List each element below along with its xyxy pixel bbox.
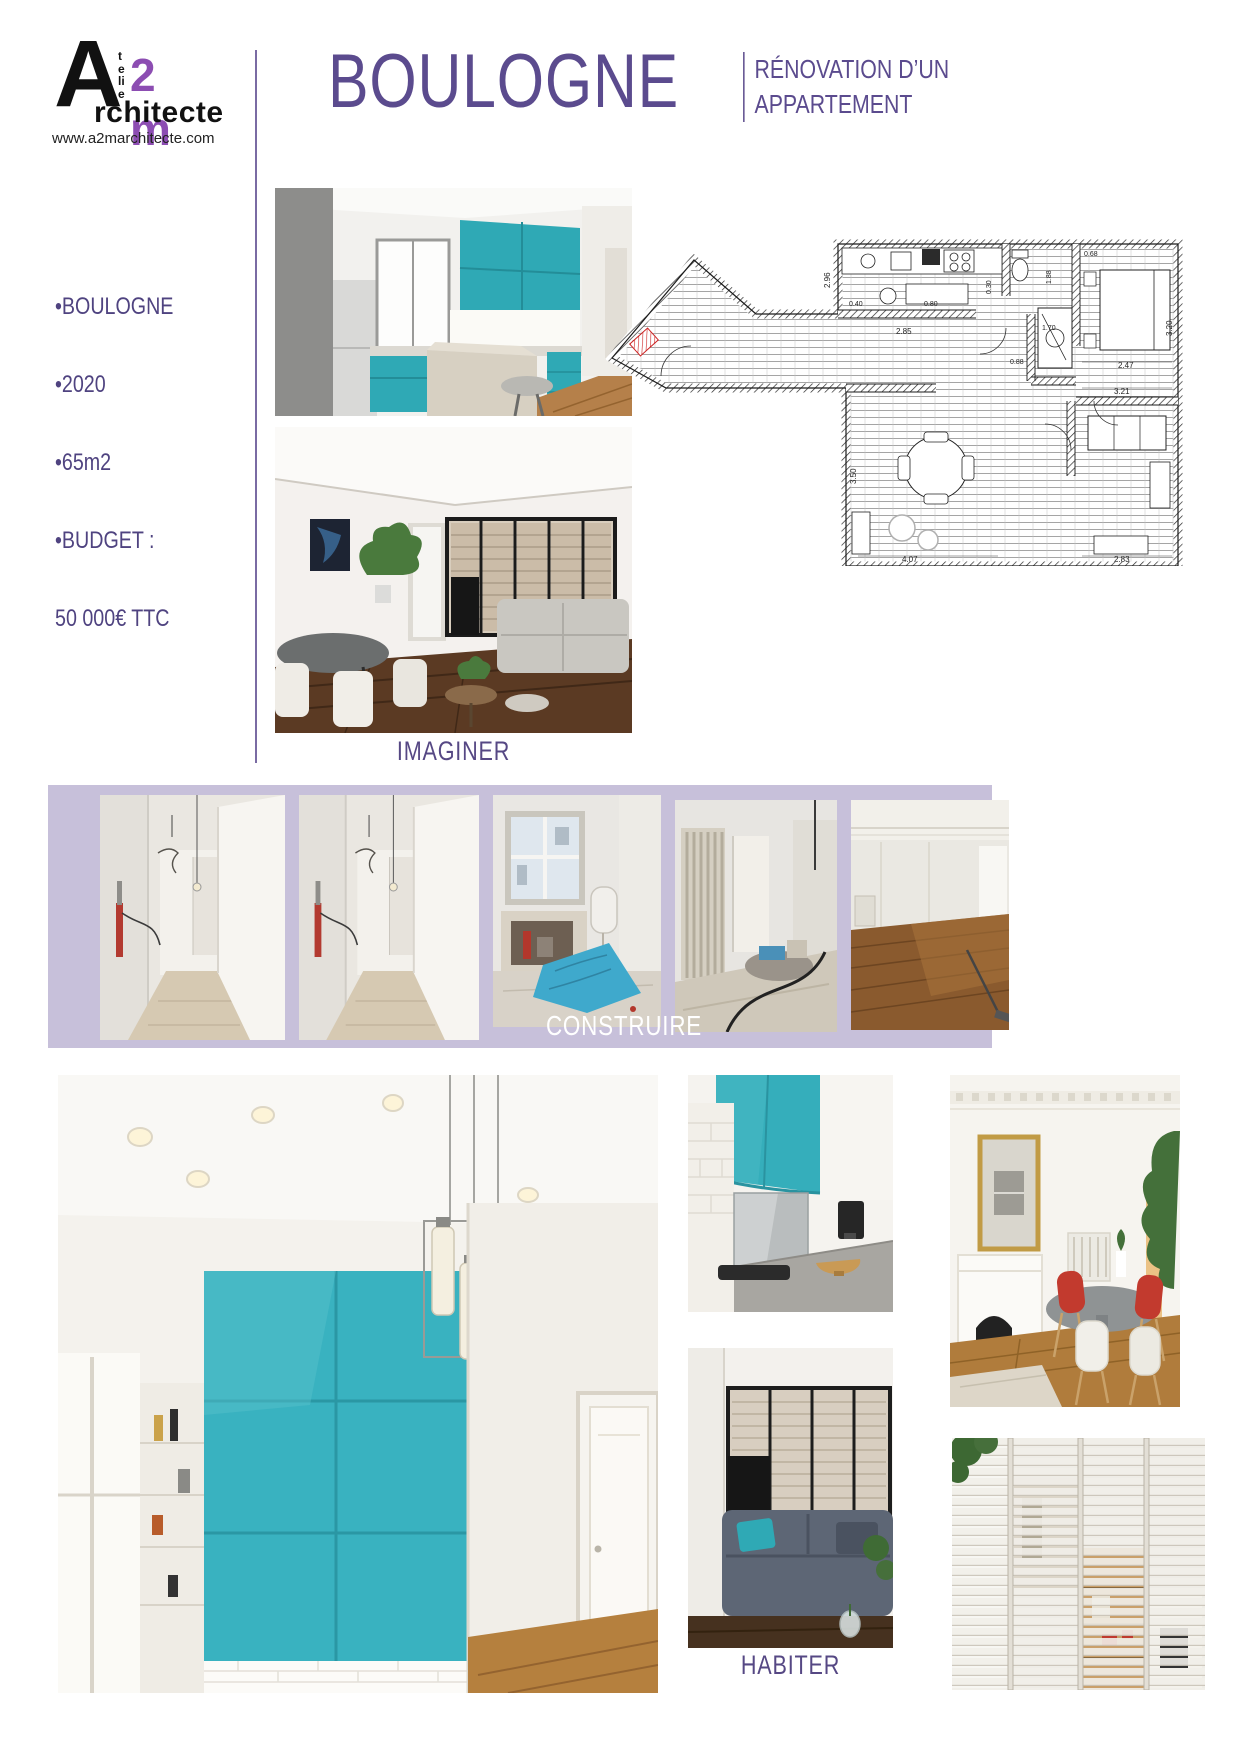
photo-finished-kitchen-large — [58, 1075, 658, 1693]
photo-construction-hallway-1 — [100, 795, 285, 1040]
section-label-imaginer: IMAGINER — [311, 736, 597, 767]
vertical-divider — [255, 50, 257, 763]
section-label-habiter: HABITER — [709, 1650, 873, 1681]
section-label-construire: CONSTRUIRE — [520, 1010, 728, 1042]
logo-website: www.a2marchitecte.com — [52, 130, 215, 147]
photo-construction-radiator — [675, 800, 837, 1032]
photo-render-kitchen — [275, 188, 632, 416]
svg-text:2.47: 2.47 — [1118, 361, 1134, 370]
logo: A telie 2 m rchitecte www.a2marchitecte.… — [52, 34, 227, 149]
project-info-item: •65m2 — [55, 443, 219, 482]
photo-construction-window-tarp — [493, 795, 661, 1027]
svg-text:2.83: 2.83 — [1114, 555, 1130, 564]
svg-text:0.88: 0.88 — [1010, 359, 1024, 366]
subtitle-line-2: APPARTEMENT — [754, 87, 967, 122]
svg-text:0.40: 0.40 — [849, 301, 863, 308]
svg-text:3.50: 3.50 — [849, 468, 858, 484]
page-subtitle: RÉNOVATION D’UN APPARTEMENT — [743, 52, 968, 122]
svg-text:0.68: 0.68 — [1084, 251, 1098, 258]
svg-text:2.85: 2.85 — [896, 327, 912, 336]
subtitle-line-1: RÉNOVATION D’UN — [754, 52, 967, 87]
svg-text:1.70: 1.70 — [1042, 325, 1056, 332]
project-info-list: •BOULOGNE •2020 •65m2 •BUDGET : 50 000€ … — [55, 248, 219, 677]
project-info-item: •BUDGET : — [55, 521, 219, 560]
floor-plan-drawing: 2.85 0.40 0.80 0.30 2.96 1.88 1.70 0.88 … — [606, 236, 1186, 566]
svg-text:0.80: 0.80 — [924, 301, 938, 308]
portfolio-page: A telie 2 m rchitecte www.a2marchitecte.… — [0, 0, 1240, 1753]
project-info-item: 50 000€ TTC — [55, 599, 219, 638]
photo-finished-sofa — [688, 1348, 893, 1648]
logo-architecte: rchitecte — [94, 96, 224, 130]
svg-text:3.21: 3.21 — [1114, 387, 1130, 396]
photo-finished-blinds — [952, 1438, 1205, 1690]
photo-finished-kitchen-detail — [688, 1075, 893, 1312]
svg-text:2.96: 2.96 — [823, 272, 832, 288]
project-info-item: •2020 — [55, 365, 219, 404]
svg-text:3.20: 3.20 — [1165, 320, 1174, 336]
project-info-item: •BOULOGNE — [55, 287, 219, 326]
page-title: BOULOGNE — [328, 44, 632, 120]
svg-text:4.07: 4.07 — [902, 555, 918, 564]
logo-atelier-vertical: telie — [118, 50, 127, 100]
photo-construction-wood-floor — [851, 800, 1009, 1030]
svg-text:1.88: 1.88 — [1046, 270, 1053, 284]
photo-render-living — [275, 427, 632, 733]
photo-construction-hallway-2 — [299, 795, 479, 1040]
svg-text:0.30: 0.30 — [986, 280, 993, 294]
photo-finished-dining — [950, 1075, 1180, 1407]
